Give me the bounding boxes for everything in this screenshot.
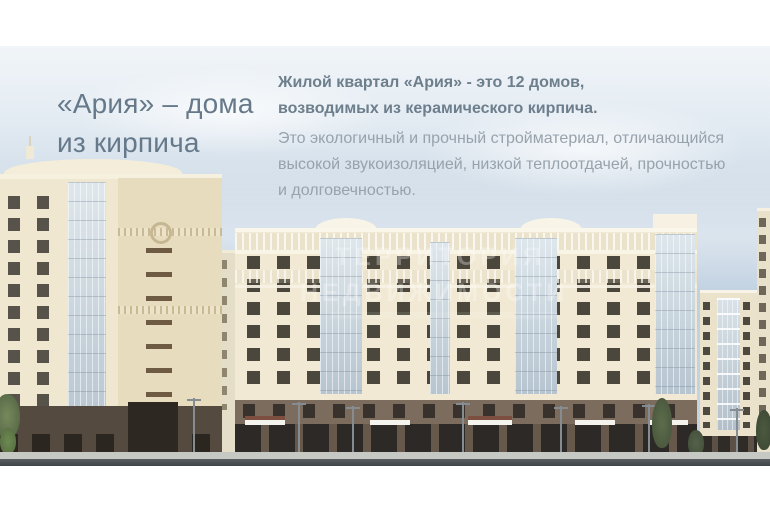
medallion-ornament <box>150 222 172 244</box>
tree <box>652 398 672 448</box>
tree <box>756 410 770 450</box>
street-lamp <box>560 406 562 456</box>
watermark-small-line <box>330 312 558 319</box>
lead-line-2: возводимых из керамического кирпича. <box>278 96 598 122</box>
promo-banner: ТЕРРИТОРИЯ НЕДВИЖИМОСТИ «Ария» – дома из… <box>0 0 770 510</box>
fascia-strip <box>468 416 512 420</box>
sidewalk <box>0 452 770 459</box>
page-title-line-1: «Ария» – дома <box>57 84 254 123</box>
left-building <box>0 174 222 460</box>
spire-icon <box>29 136 31 146</box>
glass-strip <box>68 182 106 434</box>
window-grid <box>8 196 66 408</box>
body-line-3: и долговечностью. <box>278 178 725 204</box>
street-lamp <box>462 402 464 456</box>
window-grid <box>743 302 755 428</box>
brick-dash-ornament <box>146 248 172 406</box>
canopy <box>575 420 615 425</box>
page-title-line-2: из кирпича <box>57 123 254 162</box>
tree <box>0 428 16 454</box>
road <box>0 459 770 466</box>
fascia-strip <box>245 416 285 420</box>
right-building <box>700 290 757 460</box>
parapet-block <box>653 214 697 228</box>
street-lamp <box>352 406 354 456</box>
lead-line-1: Жилой квартал «Ария» - это 12 домов, <box>278 70 598 96</box>
canopy <box>370 420 410 425</box>
window-grid <box>703 302 715 428</box>
watermark-line-2: НЕДВИЖИМОСТИ <box>300 279 568 308</box>
body-line-2: высокой звукоизоляцией, низкой теплоотда… <box>278 152 725 178</box>
window-grid <box>759 218 769 418</box>
glass-corner <box>655 234 695 394</box>
street-lamp <box>298 402 300 456</box>
canopy <box>245 420 285 425</box>
street-lamp <box>648 404 650 456</box>
page-title: «Ария» – дома из кирпича <box>57 84 254 162</box>
window-grid <box>243 404 689 418</box>
lead-paragraph: Жилой квартал «Ария» - это 12 домов, воз… <box>278 70 598 122</box>
canopy <box>468 420 512 425</box>
spire-icon <box>26 146 34 159</box>
body-line-1: Это экологичный и прочный стройматериал,… <box>278 126 725 152</box>
street-lamp <box>736 408 738 456</box>
watermark-line-1: ТЕРРИТОРИЯ <box>335 243 545 272</box>
street-lamp <box>193 398 195 456</box>
body-paragraph: Это экологичный и прочный стройматериал,… <box>278 126 725 204</box>
